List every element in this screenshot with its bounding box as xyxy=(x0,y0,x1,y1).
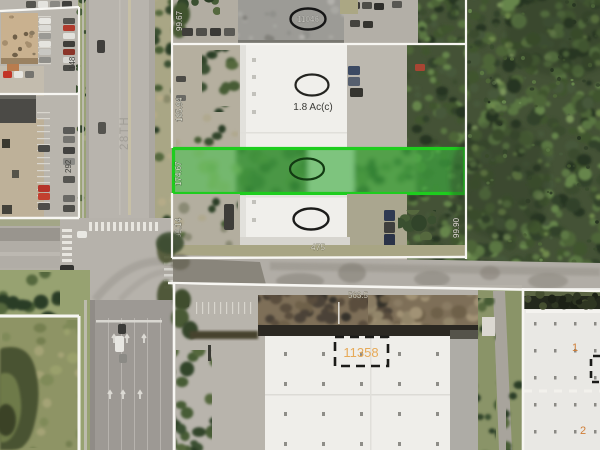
svg-text:475: 475 xyxy=(311,242,325,252)
svg-text:148: 148 xyxy=(68,56,77,70)
svg-text:28TH: 28TH xyxy=(119,116,131,150)
svg-text:1: 1 xyxy=(572,342,578,354)
svg-text:185.94: 185.94 xyxy=(175,97,184,122)
svg-text:11046: 11046 xyxy=(297,15,319,24)
svg-text:99.67: 99.67 xyxy=(175,10,184,31)
svg-text:11358: 11358 xyxy=(343,345,378,360)
svg-text:563.5: 563.5 xyxy=(348,291,369,300)
svg-text:99.90: 99.90 xyxy=(452,217,461,238)
svg-text:292: 292 xyxy=(64,159,73,173)
svg-text:174.67: 174.67 xyxy=(174,161,183,186)
svg-text:2: 2 xyxy=(580,425,586,437)
svg-text:9: 9 xyxy=(527,296,531,303)
svg-text:1.8 Ac(c): 1.8 Ac(c) xyxy=(293,102,332,113)
